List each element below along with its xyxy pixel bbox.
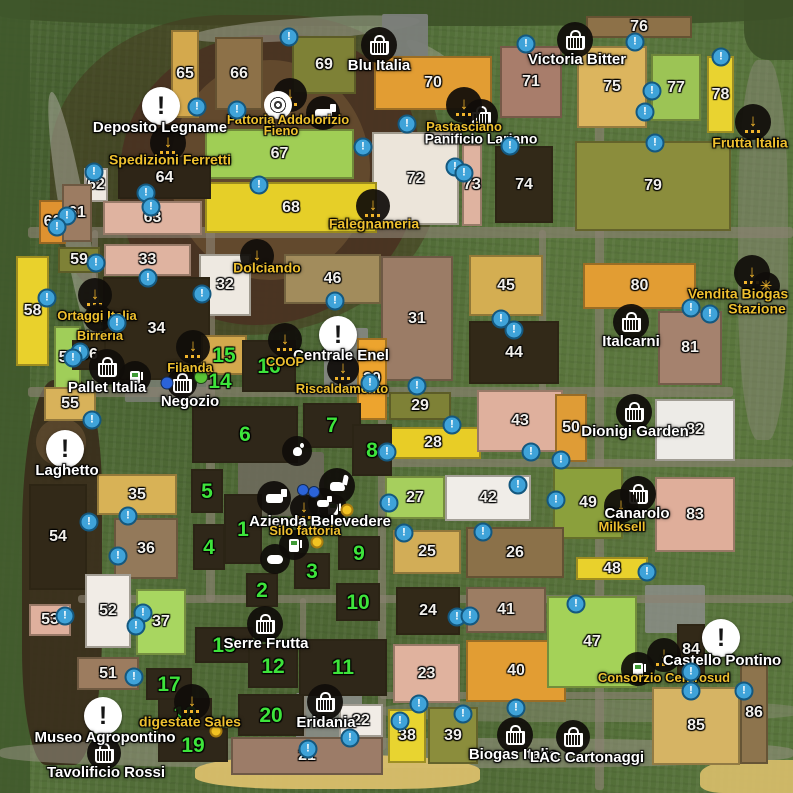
field-number-80: 80 [631, 278, 649, 294]
poi-label-vendita-biogas: Vendita Biogas [688, 287, 788, 302]
poi-label-deposito-legname: Deposito Legname [93, 120, 227, 136]
field-number-1: 1 [237, 519, 249, 540]
info-icon[interactable]: ! [250, 176, 269, 195]
info-icon[interactable]: ! [408, 377, 427, 396]
field-number-49: 49 [579, 495, 597, 511]
field-number-74: 74 [515, 177, 533, 193]
poi-label-coop: COOP [266, 355, 304, 369]
field-number-19: 19 [181, 735, 204, 756]
field-number-7: 7 [326, 415, 338, 436]
poi-label-pallet-italia: Pallet Italia [68, 380, 146, 396]
info-icon[interactable]: ! [378, 443, 397, 462]
field-4[interactable]: 4 [193, 524, 225, 570]
field-number-75: 75 [603, 79, 621, 95]
poi-label-panificio-lariano: Panificio Lariano [425, 132, 538, 147]
info-icon[interactable]: ! [127, 617, 146, 636]
field-73[interactable]: 73 [462, 144, 482, 226]
info-icon[interactable]: ! [735, 682, 754, 701]
info-icon[interactable]: ! [507, 699, 526, 718]
info-icon[interactable]: ! [509, 476, 528, 495]
info-icon[interactable]: ! [64, 349, 83, 368]
field-20[interactable]: 20 [238, 694, 304, 736]
poi-label-digestate-sales: digestate Sales [139, 715, 241, 730]
info-icon[interactable]: ! [501, 137, 520, 156]
info-icon[interactable]: ! [38, 289, 57, 308]
field-86[interactable]: 86 [740, 662, 768, 764]
info-icon[interactable]: ! [188, 98, 207, 117]
info-icon[interactable]: ! [391, 712, 410, 731]
field-number-34: 34 [148, 321, 166, 337]
field-number-2: 2 [256, 580, 268, 601]
download-icon[interactable]: ↓ [176, 330, 210, 364]
field-number-78: 78 [712, 87, 730, 103]
field-number-47: 47 [583, 634, 601, 650]
info-icon[interactable]: ! [461, 607, 480, 626]
info-icon[interactable]: ! [626, 33, 645, 52]
field-number-64: 64 [156, 170, 174, 186]
field-number-83: 83 [686, 507, 704, 523]
field-number-31: 31 [408, 311, 426, 327]
field-number-69: 69 [315, 57, 333, 73]
poi-label-frutta-italia: Frutta Italia [712, 136, 787, 151]
field-number-27: 27 [406, 490, 424, 506]
field-number-24: 24 [419, 603, 437, 619]
gamepad-icon[interactable] [260, 544, 290, 574]
field-number-70: 70 [424, 75, 442, 91]
info-icon[interactable]: ! [455, 164, 474, 183]
field-number-23: 23 [418, 666, 436, 682]
field-78[interactable]: 78 [707, 56, 734, 133]
info-icon[interactable]: ! [80, 513, 99, 532]
info-icon[interactable]: ! [85, 163, 104, 182]
info-icon[interactable]: ! [280, 28, 299, 47]
field-number-66: 66 [230, 66, 248, 82]
chicken-icon[interactable] [282, 436, 312, 466]
field-number-8: 8 [366, 440, 378, 461]
field-54[interactable]: 54 [29, 484, 87, 590]
cow-icon[interactable] [257, 481, 291, 515]
field-number-44: 44 [505, 345, 523, 361]
info-icon[interactable]: ! [83, 411, 102, 430]
field-number-9: 9 [353, 543, 365, 564]
field-23[interactable]: 23 [393, 644, 460, 703]
poi-label-museo-agropontino: Museo Agropontino [34, 730, 175, 746]
field-number-28: 28 [424, 435, 442, 451]
info-icon[interactable]: ! [395, 524, 414, 543]
info-icon[interactable]: ! [567, 595, 586, 614]
field-number-39: 39 [444, 728, 462, 744]
field-number-32: 32 [216, 277, 234, 293]
info-icon[interactable]: ! [712, 48, 731, 67]
info-icon[interactable]: ! [701, 305, 720, 324]
field-52[interactable]: 52 [85, 574, 131, 648]
field-number-3: 3 [306, 561, 318, 582]
field-number-45: 45 [497, 278, 515, 294]
field-66[interactable]: 66 [215, 37, 263, 110]
field-28[interactable]: 28 [385, 427, 481, 459]
tree-patch-topright [744, 0, 793, 60]
field-9[interactable]: 9 [338, 536, 380, 570]
poi-label-dolciando: Dolciando [233, 261, 301, 276]
field-number-36: 36 [137, 541, 155, 557]
field-43[interactable]: 43 [477, 390, 563, 452]
field-45[interactable]: 45 [469, 255, 543, 316]
field-number-59: 59 [70, 252, 88, 268]
poi-label-centrale-enel: Centrale Enel [293, 348, 389, 364]
field-number-54: 54 [49, 529, 67, 545]
info-icon[interactable]: ! [326, 292, 345, 311]
poi-label-fieno: Fieno [264, 124, 299, 138]
field-number-72: 72 [407, 171, 425, 187]
poi-label-spedizioni-ferretti: Spedizioni Ferretti [109, 153, 231, 168]
poi-label-blu-italia: Blu Italia [348, 58, 411, 74]
field-number-11: 11 [332, 657, 354, 678]
info-icon[interactable]: ! [638, 563, 657, 582]
info-icon[interactable]: ! [443, 416, 462, 435]
field-number-10: 10 [346, 592, 369, 613]
poi-label-castello-pontino: Castello Pontino [663, 653, 781, 669]
field-number-68: 68 [282, 200, 300, 216]
info-icon[interactable]: ! [341, 729, 360, 748]
field-number-5: 5 [201, 481, 213, 502]
field-number-35: 35 [128, 487, 146, 503]
poi-label-tavolificio-rossi: Tavolificio Rossi [47, 765, 165, 781]
poi-label-dionigi-garden: Dionigi Garden [581, 424, 689, 440]
info-icon[interactable]: ! [410, 695, 429, 714]
field-number-37: 37 [152, 614, 170, 630]
info-icon[interactable]: ! [193, 285, 212, 304]
poi-label-lac-cartonaggi: LAC Cartonaggi [530, 750, 644, 766]
poi-label-victoria-bitter: Victoria Bitter [528, 52, 626, 68]
farm-map: 6566697071757677787974727367686462606163… [0, 0, 793, 793]
info-icon[interactable]: ! [142, 198, 161, 217]
dot-blue-icon[interactable] [308, 486, 320, 498]
field-number-58: 58 [24, 303, 42, 319]
download-icon[interactable]: ↓ [446, 87, 482, 123]
field-number-25: 25 [418, 544, 436, 560]
field-number-79: 79 [644, 178, 662, 194]
field-number-33: 33 [139, 252, 157, 268]
info-icon[interactable]: ! [636, 103, 655, 122]
field-number-67: 67 [271, 146, 289, 162]
info-icon[interactable]: ! [522, 443, 541, 462]
info-icon[interactable]: ! [56, 607, 75, 626]
field-number-42: 42 [479, 490, 497, 506]
field-10[interactable]: 10 [336, 583, 380, 621]
poi-label-consorzio-centrosud: Consorzio Centrosud [598, 671, 730, 685]
poi-label-negozio: Negozio [161, 394, 219, 410]
field-31[interactable]: 31 [381, 256, 453, 381]
info-icon[interactable]: ! [299, 740, 318, 759]
field-number-48: 48 [603, 561, 621, 577]
info-icon[interactable]: ! [361, 374, 380, 393]
poi-label-filanda: Filanda [167, 361, 213, 375]
field-number-15: 15 [212, 345, 235, 366]
field-35[interactable]: 35 [97, 474, 177, 515]
field-5[interactable]: 5 [191, 469, 223, 513]
field-number-46: 46 [324, 271, 342, 287]
field-number-12: 12 [261, 656, 284, 677]
info-icon[interactable]: ! [139, 269, 158, 288]
field-29[interactable]: 29 [389, 392, 451, 420]
info-icon[interactable]: ! [682, 299, 701, 318]
info-icon[interactable]: ! [87, 254, 106, 273]
info-icon[interactable]: ! [228, 101, 247, 120]
field-number-55: 55 [61, 396, 79, 412]
info-icon[interactable]: ! [48, 218, 67, 237]
info-icon[interactable]: ! [682, 663, 701, 682]
info-icon[interactable]: ! [474, 523, 493, 542]
poi-label-milksell: Milksell [599, 520, 646, 534]
poi-label-serre-frutta: Serre Frutta [223, 636, 308, 652]
poi-label-italcarni: Italcarni [602, 334, 660, 350]
info-icon[interactable]: ! [552, 451, 571, 470]
info-icon[interactable]: ! [454, 705, 473, 724]
info-icon[interactable]: ! [682, 682, 701, 701]
poi-label-falegnameria: Falegnameria [329, 217, 419, 232]
field-number-51: 51 [99, 666, 117, 682]
field-number-40: 40 [507, 663, 525, 679]
info-icon[interactable]: ! [505, 321, 524, 340]
field-number-65: 65 [176, 66, 194, 82]
info-icon[interactable]: ! [354, 138, 373, 157]
field-74[interactable]: 74 [495, 146, 553, 223]
info-icon[interactable]: ! [517, 35, 536, 54]
info-icon[interactable]: ! [125, 668, 144, 687]
field-number-29: 29 [411, 398, 429, 414]
field-number-86: 86 [745, 705, 763, 721]
info-icon[interactable]: ! [646, 134, 665, 153]
field-number-77: 77 [667, 80, 685, 96]
field-number-6: 6 [239, 424, 251, 445]
info-icon[interactable]: ! [398, 115, 417, 134]
field-80[interactable]: 80 [583, 263, 696, 309]
info-icon[interactable]: ! [547, 491, 566, 510]
field-79[interactable]: 79 [575, 141, 731, 231]
info-icon[interactable]: ! [119, 507, 138, 526]
field-number-81: 81 [681, 340, 699, 356]
field-number-4: 4 [203, 537, 215, 558]
info-icon[interactable]: ! [108, 314, 127, 333]
field-number-71: 71 [522, 74, 540, 90]
field-number-52: 52 [99, 603, 117, 619]
field-number-26: 26 [506, 545, 524, 561]
field-2[interactable]: 2 [246, 573, 278, 607]
poi-label-stazione: Stazione [728, 302, 786, 317]
info-icon[interactable]: ! [643, 82, 662, 101]
field-number-20: 20 [259, 705, 282, 726]
info-icon[interactable]: ! [380, 494, 399, 513]
field-number-41: 41 [497, 602, 515, 618]
poi-label-laghetto: Laghetto [35, 463, 98, 479]
info-icon[interactable]: ! [109, 547, 128, 566]
field-number-43: 43 [511, 413, 529, 429]
field-58[interactable]: 58 [16, 256, 49, 366]
field-number-85: 85 [687, 718, 705, 734]
poi-label-silo-fattoria: Silo fattoria [269, 524, 341, 538]
dot-blue-icon[interactable] [161, 377, 174, 390]
field-number-50: 50 [562, 420, 580, 436]
